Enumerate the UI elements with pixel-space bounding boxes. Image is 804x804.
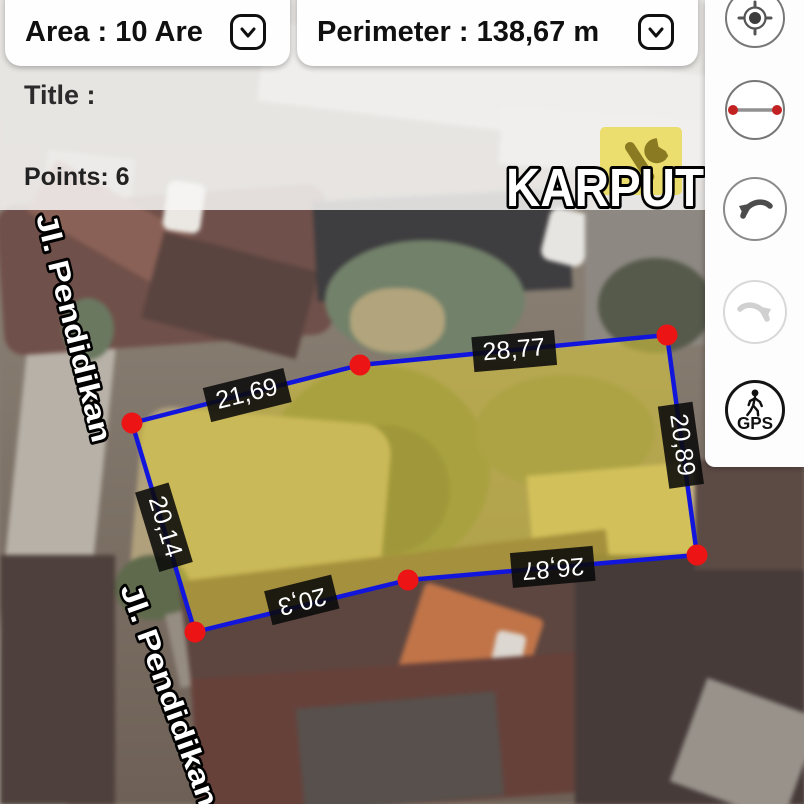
chevron-down-icon <box>646 22 666 42</box>
polygon-vertex[interactable] <box>687 545 708 566</box>
polygon-vertex[interactable] <box>398 570 419 591</box>
area-unit-dropdown-button[interactable] <box>230 14 266 50</box>
toolbar-sidebar: GPS <box>705 0 804 467</box>
perimeter-value-label: Perimeter : 138,67 m <box>317 16 599 49</box>
area-card: Area : 10 Are <box>5 0 290 66</box>
polygon-vertex[interactable] <box>657 325 678 346</box>
measure-distance-button[interactable] <box>725 80 785 140</box>
undo-button[interactable] <box>723 177 787 241</box>
my-location-button[interactable] <box>725 0 785 48</box>
edge-length-label: 28,77 <box>471 330 556 372</box>
gps-tracking-button[interactable]: GPS <box>725 380 785 440</box>
area-value-label: Area : 10 Are <box>25 16 203 49</box>
redo-arrow-icon <box>733 290 777 334</box>
undo-arrow-icon <box>733 187 777 231</box>
polygon-vertex[interactable] <box>350 355 371 376</box>
chevron-down-icon <box>238 22 258 42</box>
perimeter-unit-dropdown-button[interactable] <box>638 14 674 50</box>
redo-button[interactable] <box>723 280 787 344</box>
measure-distance-icon <box>727 82 783 138</box>
gps-walk-icon: GPS <box>728 383 782 437</box>
perimeter-card: Perimeter : 138,67 m <box>297 0 698 66</box>
polygon-vertex[interactable] <box>122 413 143 434</box>
gps-button-label: GPS <box>736 414 772 433</box>
my-location-icon <box>733 0 777 40</box>
polygon-vertex[interactable] <box>185 622 206 643</box>
app-screen: Jl. Pendidikan Jl. Pendidikan Title : Po… <box>0 0 804 804</box>
edge-length-label: 26,87 <box>510 546 595 588</box>
